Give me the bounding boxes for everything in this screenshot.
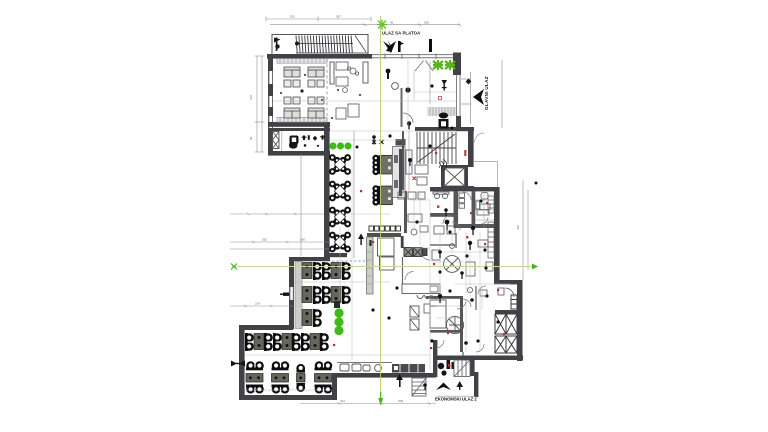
svg-text:214: 214: [255, 302, 260, 306]
svg-text:96: 96: [390, 20, 394, 24]
svg-text:260: 260: [424, 20, 429, 24]
svg-text:287: 287: [336, 15, 341, 19]
svg-text:208: 208: [398, 399, 403, 403]
svg-text:255: 255: [262, 238, 267, 242]
svg-text:GLAVNI ULAZ: GLAVNI ULAZ: [484, 76, 489, 110]
svg-text:95: 95: [249, 136, 253, 140]
svg-text:525: 525: [290, 15, 295, 19]
svg-text:180: 180: [300, 238, 305, 242]
svg-text:310: 310: [249, 95, 253, 100]
svg-text:ULAZ SA PLATOA: ULAZ SA PLATOA: [382, 31, 420, 36]
svg-text:420: 420: [516, 225, 520, 230]
svg-text:EKONOMSKI ULAZ 2: EKONOMSKI ULAZ 2: [435, 397, 477, 402]
svg-text:312: 312: [340, 399, 345, 403]
